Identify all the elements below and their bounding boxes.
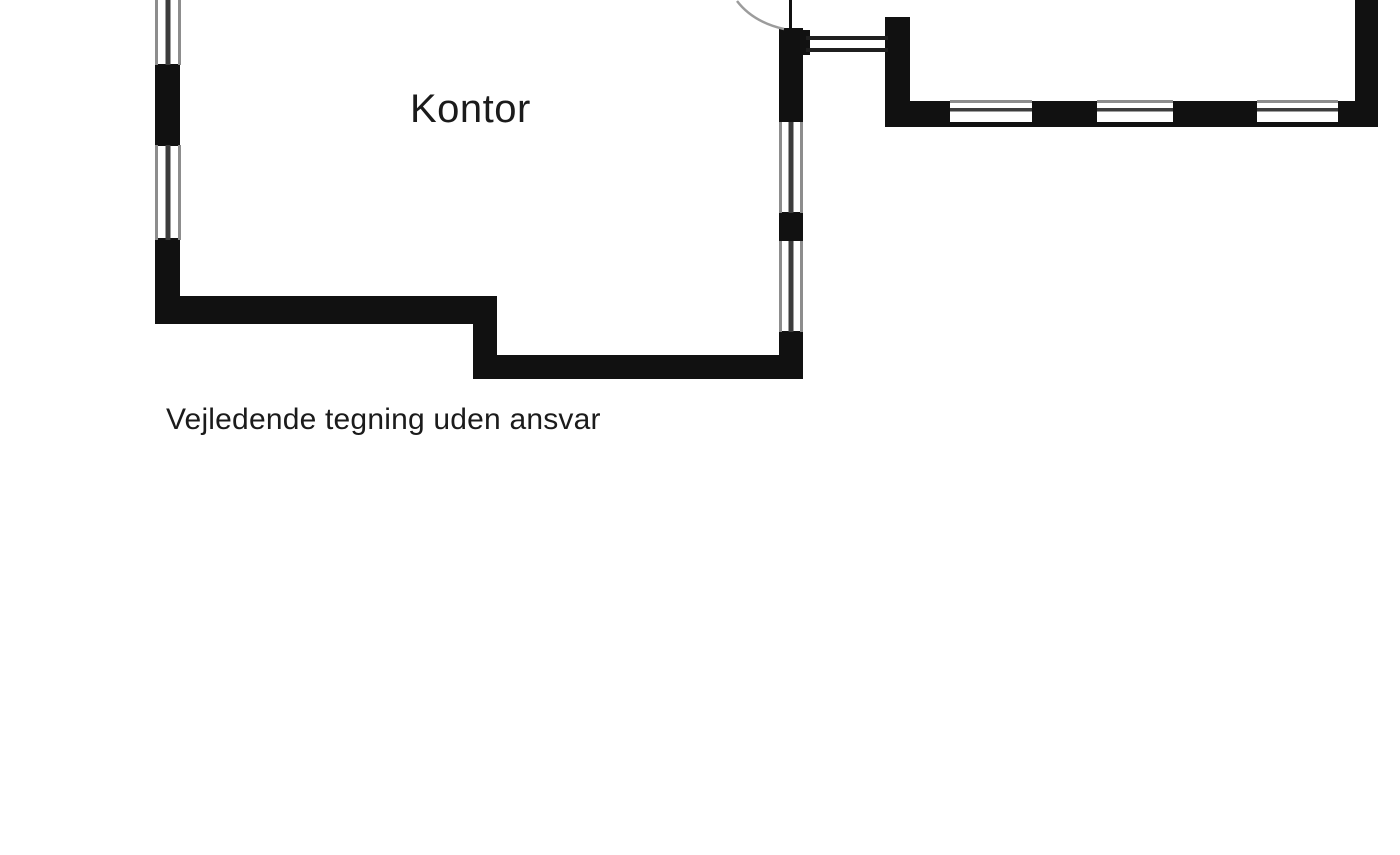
window-east-lower-glass (789, 241, 794, 332)
window-annex-2-frame-top (1097, 100, 1173, 103)
wall-east-wall-junction-nub (779, 30, 810, 55)
window-east-upper-glass (789, 122, 794, 213)
window-east-upper-frame-right (800, 122, 803, 213)
wall-annex-east-wall (1355, 0, 1378, 123)
wall-annex-south-baseline (885, 122, 1378, 127)
window-west-upper-frame-right (178, 0, 181, 65)
window-west-lower-frame-left (155, 145, 158, 240)
wall-annex-south-pier-3 (1173, 101, 1257, 123)
wall-south-wall-upper (155, 296, 495, 324)
window-annex-1-frame-top (950, 100, 1032, 103)
passage-line-lower (806, 48, 888, 52)
door-swing-arc (737, 1, 784, 29)
window-west-lower-glass (166, 145, 171, 240)
window-annex-3-glass (1257, 108, 1338, 112)
window-west-upper-frame-left (155, 0, 158, 65)
room-label-kontor: Kontor (410, 89, 531, 129)
wall-east-wall-pier-bottom (779, 331, 803, 379)
window-annex-2-glass (1097, 108, 1173, 112)
window-east-lower-frame-right (800, 241, 803, 332)
disclaimer-text: Vejledende tegning uden ansvar (166, 403, 601, 437)
window-east-upper-frame-left (779, 122, 782, 213)
wall-east-wall-pier-mid (779, 212, 803, 241)
floor-plan-stage: Kontor Vejledende tegning uden ansvar (0, 0, 1400, 855)
window-west-upper-glass (166, 0, 171, 65)
window-annex-3-frame-top (1257, 100, 1338, 103)
wall-south-wall-lower (473, 355, 803, 379)
wall-annex-south-pier-2 (1032, 101, 1097, 123)
wall-west-wall-pier-upper (155, 64, 180, 146)
window-annex-1-glass (950, 108, 1032, 112)
window-west-lower-frame-right (178, 145, 181, 240)
wall-annex-south-pier-1 (885, 101, 950, 123)
door-leaf (789, 0, 792, 30)
passage-line-upper (806, 36, 888, 40)
window-east-lower-frame-left (779, 241, 782, 332)
